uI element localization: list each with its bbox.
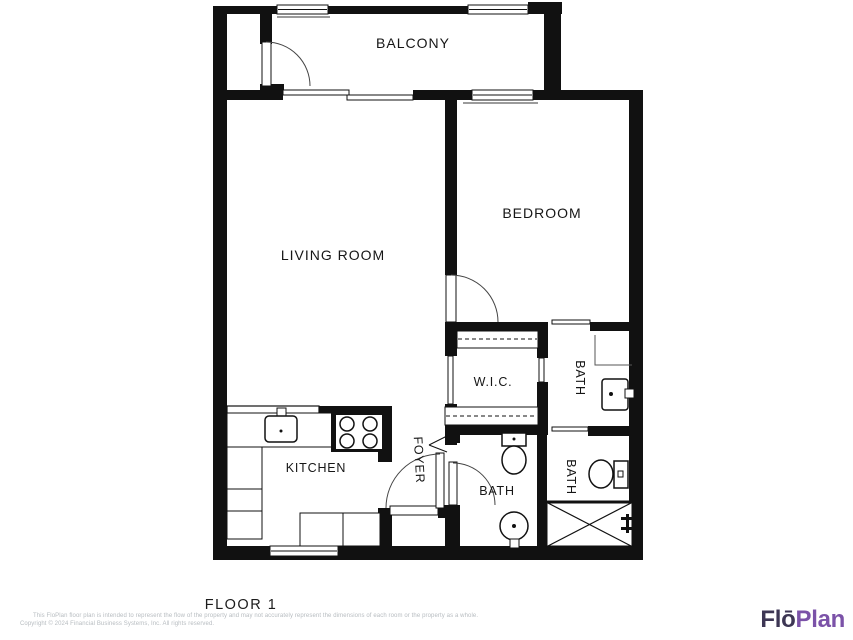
- pedestal-sink-faucet: [510, 539, 519, 548]
- opening-bedroom-bath: [552, 320, 590, 324]
- stove-icon: [331, 412, 386, 452]
- vanity-counter-line: [595, 335, 632, 365]
- label-bath-lower-right: BATH: [564, 459, 578, 495]
- opening-wic-west: [448, 356, 453, 404]
- bath-sink-icon: [602, 379, 628, 410]
- sliding-door-leaf-a: [283, 90, 349, 95]
- bath-door-leaf: [449, 462, 457, 505]
- floor-plan-page: BALCONY LIVING ROOM BEDROOM W.I.C. KITCH…: [0, 0, 853, 640]
- toilet-bowl-middle: [502, 446, 526, 474]
- wall-left: [213, 6, 227, 560]
- label-balcony: BALCONY: [376, 35, 450, 51]
- wall-balcony-right: [544, 2, 561, 100]
- toilet-bowl-right: [589, 460, 613, 488]
- disclaimer-line-1: This FloPlan floor plan is intended to r…: [33, 613, 478, 619]
- kitchen-sink-icon: [265, 416, 297, 442]
- wall-bath-west-lower: [445, 505, 460, 547]
- wall-living-bedroom: [445, 90, 457, 275]
- label-bedroom: BEDROOM: [502, 205, 581, 221]
- wic-shelf-top: [457, 331, 538, 348]
- label-bath-middle: BATH: [479, 484, 515, 498]
- disclaimer-line-2: Copyright © 2024 Financial Business Syst…: [20, 621, 214, 627]
- pedestal-sink-drain: [512, 524, 516, 528]
- kitchen-sink-drain: [280, 430, 283, 433]
- label-kitchen: KITCHEN: [286, 461, 346, 475]
- kitchen-peninsula: [300, 513, 380, 546]
- wall-wic-left-upper: [445, 322, 457, 356]
- wall-bath-south-east: [588, 426, 633, 436]
- bedroom-door-leaf: [446, 275, 456, 322]
- wall-balcony-closet: [260, 6, 272, 44]
- opening-wic-east: [539, 358, 544, 382]
- label-wic: W.I.C.: [474, 375, 513, 389]
- label-living-room: LIVING ROOM: [281, 247, 385, 263]
- wall-wic-top: [445, 322, 545, 331]
- floor-plan-drawing: [0, 0, 853, 640]
- bath-sink-drain: [609, 392, 613, 396]
- toilet-flush-middle: [513, 438, 516, 441]
- floplan-logo-flo: Flō: [760, 606, 795, 633]
- walls: [213, 2, 643, 560]
- wall-bedroom-south-east: [590, 322, 643, 331]
- kitchen-counter-left: [227, 447, 262, 539]
- floplan-logo-plan: Plan: [796, 606, 845, 633]
- toilet-flush-right: [618, 471, 623, 477]
- opening-bath-bath: [552, 427, 588, 431]
- balcony-closet-door-leaf: [262, 42, 271, 86]
- label-bath-ensuite: BATH: [573, 360, 587, 396]
- opening-entry-threshold: [390, 506, 438, 515]
- entry-door-leaf: [436, 453, 444, 508]
- wall-wic-right-upper: [537, 322, 548, 358]
- floplan-logo: FlōPlan: [760, 606, 845, 634]
- opening-foyer-chamfer: [429, 436, 447, 452]
- bedroom-door-arc: [451, 275, 498, 322]
- wall-bath-west-block: [445, 428, 460, 443]
- bath-sink-faucet: [625, 389, 634, 398]
- label-foyer: FOYER: [411, 436, 427, 484]
- balcony-closet-door-arc: [266, 42, 310, 86]
- sliding-door-leaf-b: [347, 95, 413, 100]
- floor-title: FLOOR 1: [205, 597, 278, 613]
